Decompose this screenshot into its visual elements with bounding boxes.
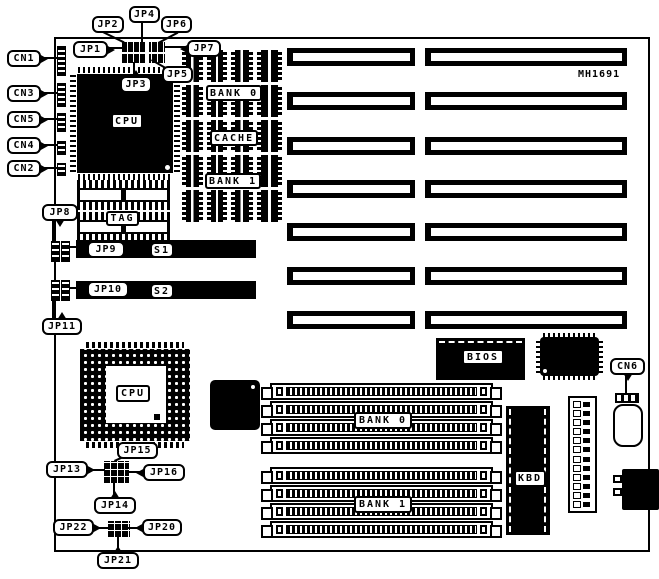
bios-label: BIOS — [462, 349, 504, 365]
power-pin-row — [573, 446, 594, 454]
callout-cn2: CN2 — [7, 160, 41, 177]
cpu-pin-fringe-left — [70, 75, 76, 172]
simm-socket-bank0-4 — [270, 437, 493, 454]
jp11-jumper-header-a — [51, 280, 60, 301]
chipset-pin1-dot — [543, 369, 547, 373]
cn2-header — [57, 163, 66, 176]
cn3-header — [57, 83, 66, 107]
isa-slot-5-short-segment — [287, 223, 415, 241]
isa-slot-6-long-segment — [425, 267, 627, 285]
cache-dip-chip — [257, 120, 282, 152]
cn5-header — [57, 113, 66, 132]
callout-jp2: JP2 — [92, 16, 124, 33]
callout-jp1: JP1 — [73, 41, 108, 58]
callout-jp11: JP11 — [42, 318, 82, 335]
cpu-socket-label: CPU — [116, 385, 150, 402]
cpu-qfp-label: CPU — [111, 113, 143, 129]
power-pin-row — [573, 400, 594, 408]
tag-label: TAG — [106, 211, 139, 226]
simm-bank0-label: BANK 0 — [354, 412, 412, 429]
qfp-small-pin1-dot — [251, 385, 255, 389]
callout-jp6: JP6 — [161, 16, 192, 33]
cache-dip-chip — [257, 50, 282, 82]
power-pin-row — [573, 409, 594, 417]
power-pin-row — [573, 418, 594, 426]
simm-bank1-label: BANK 1 — [354, 496, 412, 513]
model-number: MH1691 — [578, 69, 620, 80]
isa-slot-5-long-segment — [425, 223, 627, 241]
callout-jp15: JP15 — [117, 442, 158, 459]
callout-jp16: JP16 — [143, 464, 185, 481]
cache-dip-chip — [231, 50, 253, 82]
isa-slot-2-long-segment — [425, 92, 627, 110]
callout-jp21: JP21 — [97, 552, 139, 569]
power-connector — [568, 396, 597, 513]
jp8-jumper-header-b — [61, 241, 70, 262]
callout-cn5: CN5 — [7, 111, 41, 128]
callout-jp10: JP10 — [87, 281, 129, 298]
jp4-pointer-line — [141, 22, 143, 42]
isa-slot-1-long-segment — [425, 48, 627, 66]
cache-dip-chip — [231, 190, 253, 222]
isa-slot-4-short-segment — [287, 180, 415, 198]
callout-cn6: CN6 — [610, 358, 645, 375]
cache-bank1-label: BANK 1 — [205, 173, 261, 189]
power-pin-row — [573, 483, 594, 491]
isa-slot-3-short-segment — [287, 137, 415, 155]
cache-dip-chip — [182, 190, 203, 222]
callout-jp22: JP22 — [53, 519, 94, 536]
jp11-jumper-header-b — [61, 280, 70, 301]
power-pin-row — [573, 437, 594, 445]
cache-dip-chip — [182, 120, 203, 152]
callout-jp13: JP13 — [46, 461, 88, 478]
jp8-jumper-header-a — [51, 241, 60, 262]
callout-cn4: CN4 — [7, 137, 41, 154]
isa-slot-6-short-segment — [287, 267, 415, 285]
jp20-jp22-jumper-block — [108, 521, 130, 537]
isa-slot-7-short-segment — [287, 311, 415, 329]
simm-socket-bank1-1 — [270, 467, 493, 484]
power-pin-row — [573, 464, 594, 472]
power-pin-row — [573, 428, 594, 436]
callout-jp7: JP7 — [187, 40, 221, 57]
s2-label: S2 — [150, 283, 174, 299]
din-tab-bottom — [613, 488, 622, 496]
cache-label: CACHE — [210, 130, 258, 146]
callout-jp3: JP3 — [120, 76, 152, 93]
jp8-pointer-line — [52, 221, 54, 241]
chipset-chip — [536, 333, 603, 380]
din-tab-top — [613, 475, 622, 483]
power-pin-row — [573, 501, 594, 509]
socket-pins-top — [86, 342, 184, 348]
qfp-chip-small — [210, 380, 260, 430]
cpu-pin-fringe-right — [174, 75, 180, 172]
power-pin-row — [573, 492, 594, 500]
s1-label: S1 — [150, 242, 174, 258]
callout-jp9: JP9 — [87, 241, 125, 258]
isa-slot-7-long-segment — [425, 311, 627, 329]
jp11-pointer-line — [52, 301, 54, 319]
motherboard-diagram: MH1691 CPU BANK 0 CACHE BANK 1 TAG S1 S2 — [0, 0, 659, 579]
cache-dip-chip — [257, 190, 282, 222]
keyboard-din-connector — [622, 469, 659, 510]
callout-jp4: JP4 — [129, 6, 160, 23]
power-pin-row — [573, 473, 594, 481]
callout-jp5: JP5 — [162, 66, 193, 83]
isa-slot-3-long-segment — [425, 137, 627, 155]
callout-jp20: JP20 — [142, 519, 182, 536]
jp13-jp16-jumper-block — [104, 461, 129, 483]
callout-jp8: JP8 — [42, 204, 78, 221]
cn4-header — [57, 141, 66, 155]
isa-slot-4-long-segment — [425, 180, 627, 198]
cache-dip-column-4 — [257, 50, 282, 222]
callout-jp14: JP14 — [94, 497, 136, 514]
socket-key-dot — [154, 414, 160, 420]
jp1-jp7-jumper-block — [122, 42, 165, 63]
isa-slot-2-short-segment — [287, 92, 415, 110]
simm-socket-bank0-1 — [270, 383, 493, 400]
battery — [613, 404, 643, 447]
callout-cn3: CN3 — [7, 85, 41, 102]
cn1-header — [57, 46, 66, 76]
cache-dip-chip — [207, 190, 227, 222]
callout-cn1: CN1 — [7, 50, 41, 67]
simm-socket-bank1-4 — [270, 521, 493, 538]
power-pin-row — [573, 455, 594, 463]
isa-slot-1-short-segment — [287, 48, 415, 66]
cn6-header — [615, 393, 639, 403]
cache-dip-chip — [182, 85, 203, 117]
cpu-pin1-dot — [165, 165, 170, 170]
cpu-pin-fringe-top — [78, 67, 172, 73]
kbd-label: KBD — [514, 470, 546, 487]
cache-dip-chip — [182, 155, 203, 187]
cache-bank0-label: BANK 0 — [206, 85, 262, 101]
